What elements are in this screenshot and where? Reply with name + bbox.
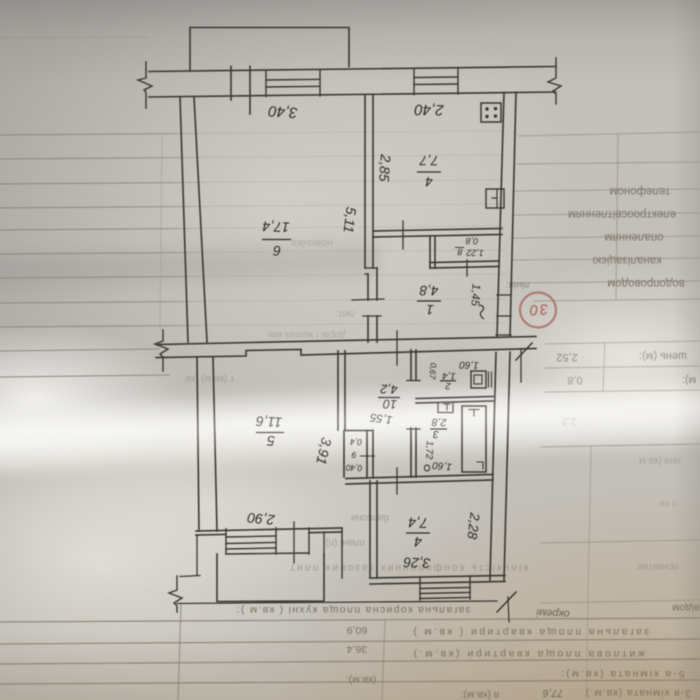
svg-text:3,91: 3,91 xyxy=(313,436,335,466)
svg-text:х кв: х кв xyxy=(659,498,676,509)
svg-text:(кв.м):: (кв.м): xyxy=(346,674,376,686)
svg-text:8: 8 xyxy=(457,247,462,257)
svg-text:ння (кв.м: ння (кв.м xyxy=(639,455,681,466)
svg-text:опаленням: опаленням xyxy=(604,231,663,243)
svg-text:5: 5 xyxy=(266,433,275,449)
svg-text:2,8: 2,8 xyxy=(431,416,447,429)
svg-text:окремі: окремі xyxy=(536,606,571,620)
svg-text:77,6: 77,6 xyxy=(543,687,564,699)
svg-text:3,40: 3,40 xyxy=(267,102,298,121)
svg-text:9: 9 xyxy=(351,450,356,460)
svg-text:4: 4 xyxy=(414,534,423,550)
svg-text:телефоном: телефоном xyxy=(610,185,671,197)
svg-text:1,4: 1,4 xyxy=(442,370,456,381)
svg-text:2,28: 2,28 xyxy=(464,511,482,540)
svg-text:загальна площа квартири ( кв.м: загальна площа квартири ( кв.м ) xyxy=(411,626,649,638)
svg-text:електроосвітленням: електроосвітленням xyxy=(568,208,676,220)
svg-text:2,90: 2,90 xyxy=(247,510,277,528)
svg-text:11,6: 11,6 xyxy=(255,413,282,430)
svg-text:7,4: 7,4 xyxy=(408,515,428,532)
svg-text:3,26: 3,26 xyxy=(403,555,431,572)
svg-text:0,40: 0,40 xyxy=(345,463,362,474)
svg-text:0,8: 0,8 xyxy=(466,236,479,246)
svg-text:1,60: 1,60 xyxy=(431,459,452,472)
svg-text:5,11: 5,11 xyxy=(340,206,359,234)
svg-text:2,2: 2,2 xyxy=(562,415,576,426)
svg-text:житлова площа квартири (кв.м.): житлова площа квартири (кв.м.) xyxy=(411,648,645,660)
svg-text:2,85: 2,85 xyxy=(376,153,394,183)
svg-text:1,22: 1,22 xyxy=(466,248,484,259)
svg-text:2,52: 2,52 xyxy=(556,351,577,363)
svg-text:відом: відом xyxy=(672,602,699,614)
svg-text:1,72: 1,72 xyxy=(423,441,435,461)
svg-text:1: 1 xyxy=(426,302,434,317)
svg-text:примітки:: примітки: xyxy=(636,561,679,572)
svg-text:36,4: 36,4 xyxy=(347,643,368,655)
svg-text:4: 4 xyxy=(425,174,433,189)
svg-text:0,67: 0,67 xyxy=(427,362,438,380)
svg-text:6: 6 xyxy=(273,243,282,259)
svg-text:5-а кімната (кв.м):: 5-а кімната (кв.м): xyxy=(559,668,684,680)
svg-text:2: 2 xyxy=(444,380,451,391)
svg-text:номоніка: номоніка xyxy=(291,237,333,248)
svg-text:4,8: 4,8 xyxy=(419,283,439,298)
svg-text:17,4: 17,4 xyxy=(262,219,290,236)
svg-text:загальна корисна площа кухні (: загальна корисна площа кухні ( кв.м ): xyxy=(235,604,470,616)
svg-text:т (кв.м) (кв: т (кв.м) (кв xyxy=(185,373,234,384)
svg-text:я (кв.м):: я (кв.м): xyxy=(461,689,500,700)
svg-text:10: 10 xyxy=(383,397,397,411)
svg-text:шень (м):: шень (м): xyxy=(639,350,687,362)
svg-text:1,45: 1,45 xyxy=(468,283,481,307)
svg-text:1,55: 1,55 xyxy=(369,410,393,425)
svg-text:0,8: 0,8 xyxy=(567,374,582,386)
svg-text:2,40: 2,40 xyxy=(414,101,445,119)
svg-text:4,2: 4,2 xyxy=(380,382,398,397)
svg-text:водопроводом: водопроводом xyxy=(607,277,684,289)
svg-text:плані (п): плані (п) xyxy=(325,537,364,548)
svg-text:3-я кімната (кв.м.): 3-я кімната (кв.м.) xyxy=(585,687,691,699)
svg-text:7,7: 7,7 xyxy=(419,153,439,168)
svg-text:м):: м): xyxy=(682,374,696,386)
svg-text:30: 30 xyxy=(527,300,548,317)
svg-text:60,9: 60,9 xyxy=(347,624,368,636)
svg-text:лют:: лют: xyxy=(335,308,355,319)
svg-text:каналізацією: каналізацією xyxy=(592,254,661,266)
svg-text:3: 3 xyxy=(433,428,439,440)
svg-text:0,4: 0,4 xyxy=(350,437,362,447)
svg-text:1,60: 1,60 xyxy=(459,359,479,371)
svg-text:лінія:: лінія: xyxy=(506,279,530,290)
svg-text:дорів і жилих кім: дорів і жилих кім xyxy=(268,329,345,340)
